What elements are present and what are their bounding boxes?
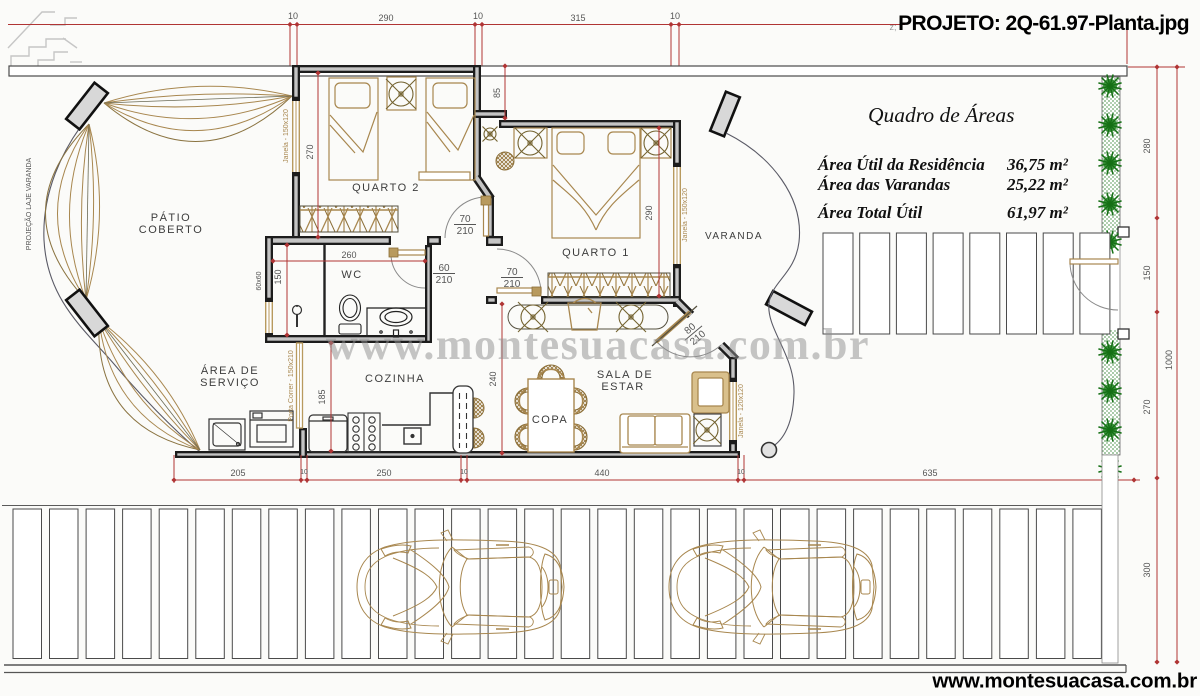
svg-text:10: 10 [737, 469, 745, 476]
svg-text:300: 300 [1142, 562, 1152, 577]
svg-text:COZINHA: COZINHA [365, 373, 425, 385]
svg-text:10: 10 [288, 11, 298, 21]
svg-text:10: 10 [670, 11, 680, 21]
svg-text:Área das Varandas: Área das Varandas [817, 175, 951, 194]
svg-text:70: 70 [506, 267, 518, 278]
svg-text:270: 270 [1142, 399, 1152, 414]
svg-text:Quadro de Áreas: Quadro de Áreas [868, 103, 1015, 127]
svg-text:10: 10 [300, 469, 308, 476]
svg-text:QUARTO 1: QUARTO 1 [562, 247, 630, 259]
svg-text:QUARTO 2: QUARTO 2 [352, 182, 420, 194]
svg-text:150: 150 [273, 269, 283, 284]
svg-text:85: 85 [492, 88, 502, 98]
svg-text:240: 240 [488, 371, 498, 386]
svg-text:10: 10 [473, 11, 483, 21]
svg-text:270: 270 [305, 144, 315, 159]
svg-text:315: 315 [570, 13, 585, 23]
svg-text:WC: WC [341, 269, 362, 281]
svg-text:290: 290 [644, 205, 654, 220]
svg-text:VARANDA: VARANDA [705, 231, 763, 242]
svg-text:60: 60 [438, 263, 450, 274]
svg-text:Janela - 150x120: Janela - 150x120 [682, 188, 689, 242]
svg-text:280: 280 [1142, 138, 1152, 153]
svg-text:70: 70 [459, 214, 471, 225]
svg-text:61,97 m²: 61,97 m² [1007, 203, 1069, 222]
svg-text:260: 260 [341, 250, 356, 260]
svg-text:Área Total Útil: Área Total Útil [817, 203, 922, 222]
svg-text:Janela - 120x120: Janela - 120x120 [738, 384, 745, 438]
svg-text:ESTAR: ESTAR [601, 381, 644, 393]
svg-text:COBERTO: COBERTO [139, 224, 204, 236]
svg-text:60x60: 60x60 [256, 271, 263, 290]
svg-text:www.montesuacasa.com.br: www.montesuacasa.com.br [326, 320, 870, 369]
svg-text:185: 185 [317, 389, 327, 404]
svg-text:ÁREA DE: ÁREA DE [201, 364, 259, 377]
svg-text:210: 210 [436, 275, 453, 286]
svg-text:SERVIÇO: SERVIÇO [200, 377, 260, 389]
svg-text:10: 10 [460, 469, 468, 476]
svg-text:635: 635 [922, 468, 937, 478]
svg-text:z;: z; [889, 22, 896, 32]
svg-text:PROJEÇÃO LAJE VARANDA: PROJEÇÃO LAJE VARANDA [24, 157, 33, 250]
svg-text:Área Útil da Residência: Área Útil da Residência [817, 155, 985, 174]
svg-text:PROJETO: 2Q-61.97-Planta.jpg: PROJETO: 2Q-61.97-Planta.jpg [898, 12, 1189, 35]
svg-text:COPA: COPA [532, 414, 568, 426]
svg-text:www.montesuacasa.com.br: www.montesuacasa.com.br [931, 670, 1197, 692]
svg-text:150: 150 [1142, 265, 1152, 280]
svg-text:PÁTIO: PÁTIO [151, 211, 192, 224]
svg-text:Porta Correr - 150x210: Porta Correr - 150x210 [288, 350, 295, 422]
svg-text:250: 250 [376, 468, 391, 478]
svg-text:36,75 m²: 36,75 m² [1006, 155, 1069, 174]
svg-text:25,22 m²: 25,22 m² [1006, 175, 1069, 194]
svg-text:210: 210 [457, 226, 474, 237]
svg-text:210: 210 [504, 279, 521, 290]
svg-text:SALA DE: SALA DE [597, 369, 653, 381]
svg-text:205: 205 [230, 468, 245, 478]
svg-text:290: 290 [378, 13, 393, 23]
svg-text:Janela - 150x120: Janela - 150x120 [283, 109, 290, 163]
svg-text:1000: 1000 [1164, 350, 1174, 370]
svg-text:440: 440 [594, 468, 609, 478]
